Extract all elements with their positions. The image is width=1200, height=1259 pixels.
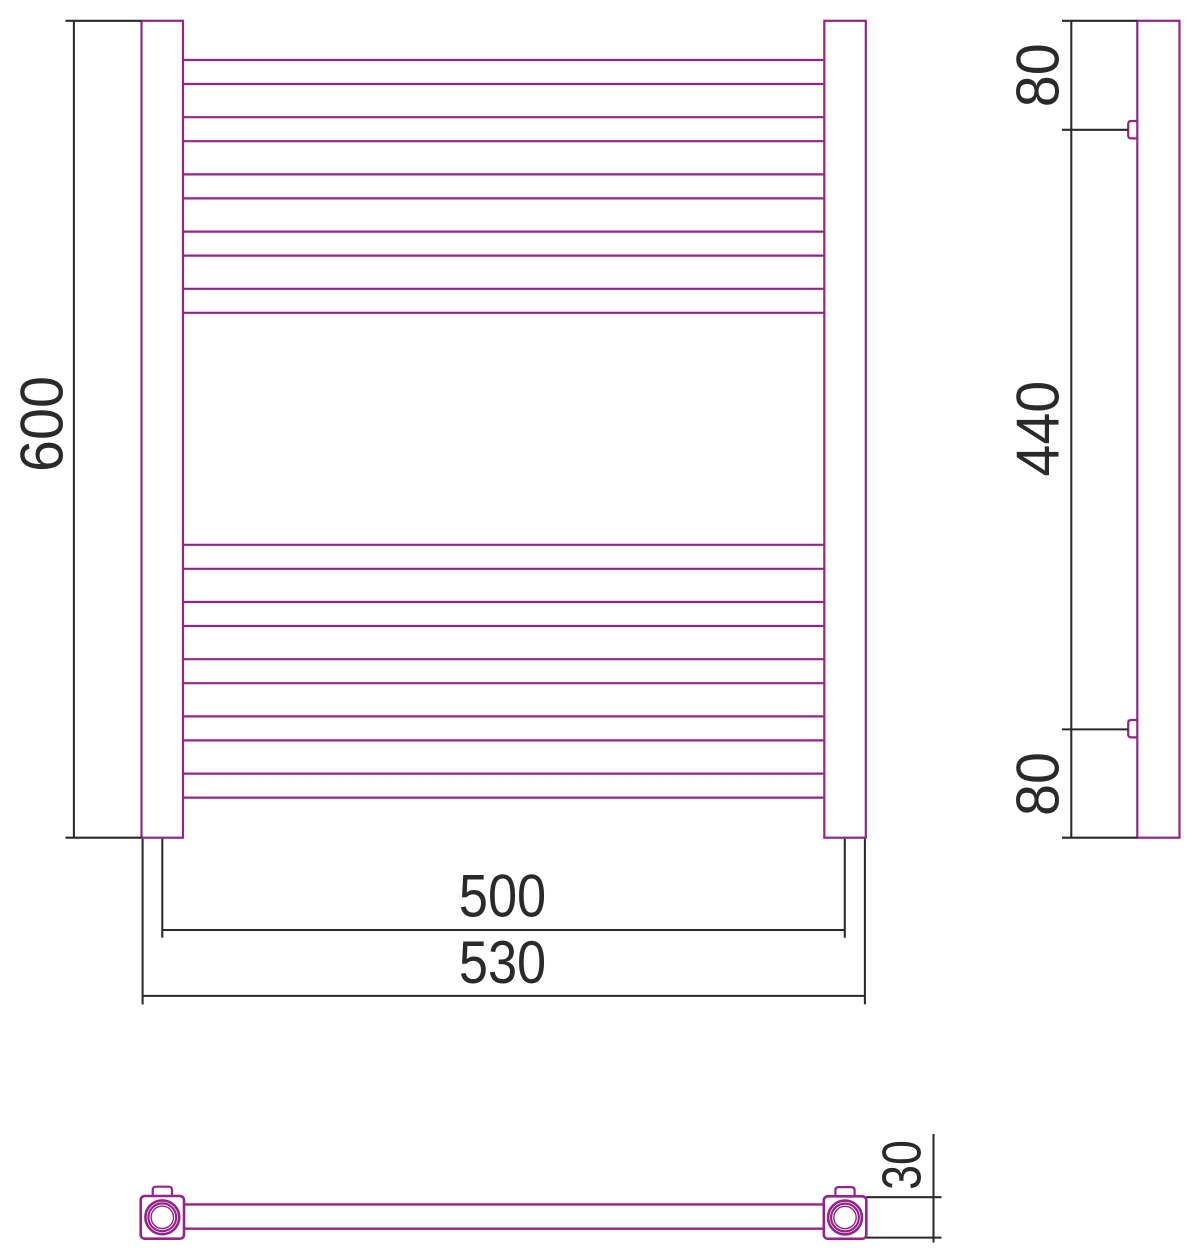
svg-text:80: 80 <box>1004 752 1072 816</box>
svg-text:30: 30 <box>871 1140 932 1190</box>
svg-text:80: 80 <box>1004 43 1072 107</box>
svg-text:600: 600 <box>8 376 76 472</box>
svg-text:500: 500 <box>459 862 546 929</box>
svg-text:440: 440 <box>1004 381 1072 477</box>
svg-text:530: 530 <box>459 928 546 995</box>
